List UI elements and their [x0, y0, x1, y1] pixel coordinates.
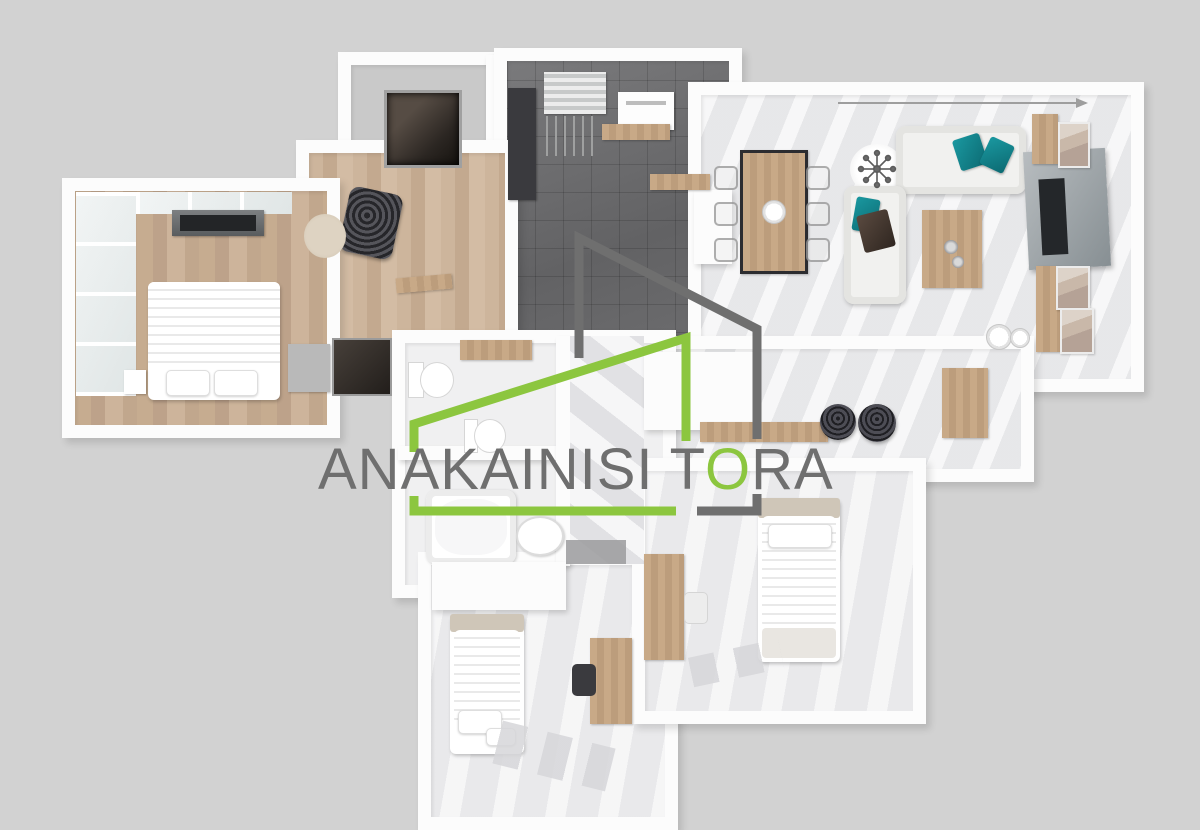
desk: [590, 638, 632, 724]
wall-art: [1056, 266, 1090, 310]
toilet-bowl: [420, 362, 454, 398]
ghost-chair: [714, 166, 738, 190]
bar-stool-pouf: [820, 404, 856, 440]
vanity-counter: [460, 340, 532, 360]
closet-dark: [332, 338, 392, 396]
wardrobe: [432, 562, 566, 610]
round-jute-rug: [304, 214, 346, 258]
tv-screen: [180, 215, 256, 231]
washbasin: [516, 516, 564, 556]
toilet-bowl: [474, 419, 506, 453]
single-bed-right: [758, 498, 840, 662]
storage-closet-opening: [384, 90, 462, 168]
window-wall: [76, 192, 136, 396]
double-bed: [148, 282, 280, 400]
sideboard: [1032, 114, 1058, 164]
table-plate: [762, 200, 786, 224]
ghost-chair: [806, 238, 830, 262]
tv-console: [172, 210, 264, 236]
ghost-chair: [714, 238, 738, 262]
storage-box: [288, 344, 330, 392]
bath-mat: [566, 540, 626, 564]
bedside-table: [124, 370, 146, 394]
decor-plate: [986, 324, 1012, 350]
tall-cabinet: [942, 368, 988, 438]
bar-counter: [700, 422, 828, 442]
drying-rack: [546, 116, 594, 156]
pillow: [768, 524, 832, 548]
toilet: [464, 416, 504, 454]
wall-art: [1058, 122, 1090, 168]
toilet: [408, 358, 454, 400]
tv-screen: [1038, 178, 1068, 255]
cup: [944, 240, 958, 254]
cup: [952, 256, 964, 268]
ghost-chair: [806, 166, 830, 190]
staircase-area: [570, 336, 644, 564]
desk: [644, 554, 684, 660]
wall-art: [1060, 308, 1094, 354]
kitchen-roller-blind: [544, 72, 606, 114]
kitchen-counter: [508, 88, 536, 200]
bathtub-inner: [435, 499, 507, 555]
ghost-chair: [806, 202, 830, 226]
ghost-chair: [714, 202, 738, 226]
desk-chair: [572, 664, 596, 696]
duvet: [148, 282, 280, 368]
washer-door: [626, 101, 666, 105]
coffee-table: [922, 210, 982, 288]
kitchen-shelf: [602, 124, 670, 140]
bar-stool-pouf: [858, 404, 896, 442]
headboard: [758, 498, 840, 518]
bar-island: [644, 352, 756, 430]
desk-chair: [684, 592, 708, 624]
dining-table: [740, 150, 808, 274]
bathtub: [426, 490, 516, 564]
floor-plan-canvas: ANAKAINISI TORA: [0, 0, 1200, 830]
pillow: [166, 370, 210, 396]
kitchen-shelf: [650, 174, 710, 190]
decor-plate: [1010, 328, 1030, 348]
pillow: [214, 370, 258, 396]
